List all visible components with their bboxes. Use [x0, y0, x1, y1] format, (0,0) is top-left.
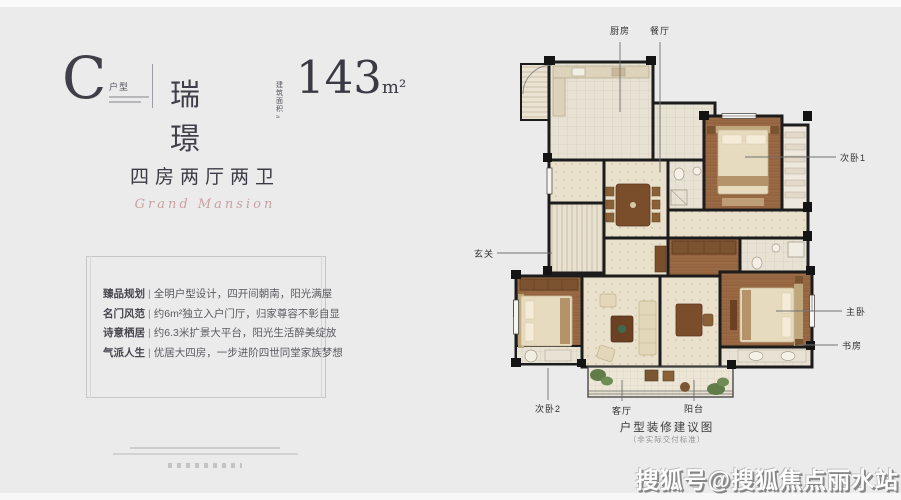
label-master: 主卧	[846, 305, 866, 318]
label-bedroom2: 次卧2	[535, 402, 561, 415]
label-bedroom1: 次卧1	[840, 151, 866, 164]
label-study: 书房	[842, 339, 862, 352]
floor-plan	[0, 0, 901, 500]
plan-caption-note: （非实际交付标准）	[629, 434, 706, 445]
label-entry: 玄关	[474, 247, 494, 260]
plan-caption: 户型装修建议图	[620, 419, 715, 435]
poster: C 户型 瑞璟 建筑 面积≈ 143m² 四房两厅两卫 Grand Mansio…	[0, 0, 901, 500]
label-dining: 餐厅	[650, 24, 670, 37]
label-kitchen: 厨房	[610, 24, 630, 37]
watermark: 搜狐号@搜狐焦点丽水站	[636, 461, 899, 495]
label-living: 客厅	[612, 404, 632, 417]
label-balcony: 阳台	[684, 402, 704, 415]
